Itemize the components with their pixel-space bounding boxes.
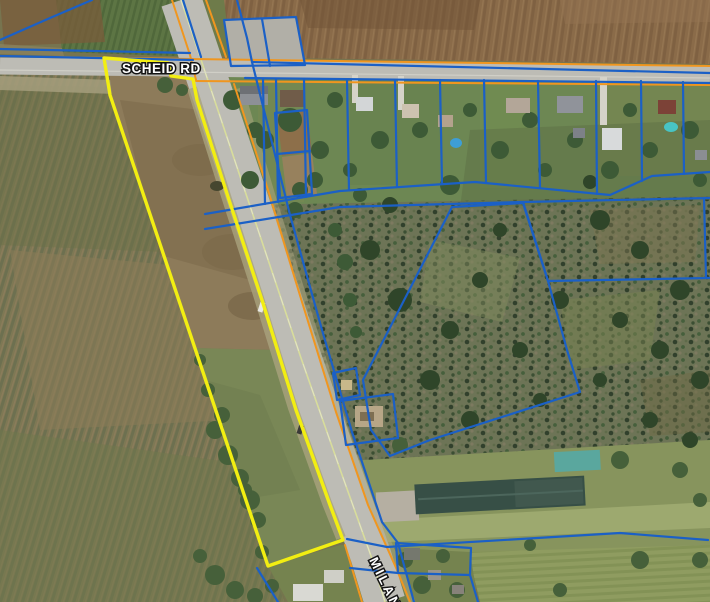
house [356,97,373,111]
barn [602,128,622,150]
house [506,98,530,113]
house [402,104,419,118]
house [557,96,583,113]
map-svg: SCHEID RD MILAN [0,0,710,602]
house [658,100,676,114]
house [280,90,304,107]
map-canvas[interactable]: SCHEID RD MILAN [0,0,710,602]
pool [450,138,462,148]
pool [664,122,678,132]
teal-building [554,450,601,472]
road-label-scheid: SCHEID RD [122,61,201,76]
